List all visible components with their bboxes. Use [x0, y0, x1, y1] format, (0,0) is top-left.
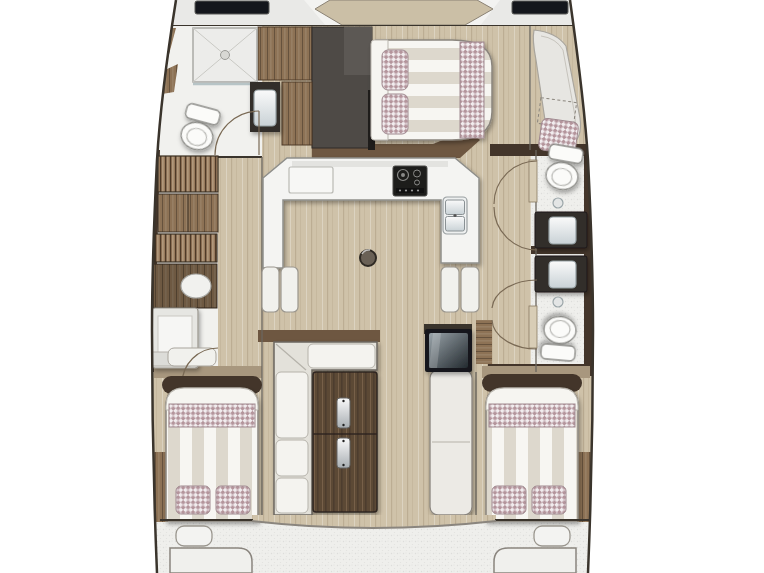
- sofa-cushion-left-3: [276, 478, 308, 513]
- sink-faucet: [453, 214, 456, 217]
- dinette-table: [313, 372, 377, 512]
- port-hull-wardrobes: [152, 156, 218, 384]
- shower-drain-icon: [553, 198, 563, 208]
- aft-port-cabin: [162, 376, 262, 521]
- aft-starboard-cabin: [482, 374, 582, 521]
- sink-basin-1: [446, 200, 465, 215]
- deck-hatch-port-icon: [195, 1, 269, 14]
- washbasin-icon: [254, 90, 276, 126]
- forward-berth-pillow-2: [382, 94, 408, 134]
- sofa-cushion-top: [308, 344, 375, 368]
- transom-locker-starboard: [494, 548, 576, 573]
- shower: [193, 28, 257, 84]
- catamaran-floor-plan: [0, 0, 764, 573]
- washbasin-icon: [549, 261, 576, 288]
- sofa-cushion-left-2: [276, 440, 308, 476]
- galley-stove-icon: [393, 166, 427, 196]
- forward-cabinet-wood: [258, 27, 312, 80]
- forward-head-vanity: [250, 82, 280, 132]
- cockpit-step-port: [176, 526, 212, 546]
- toilet-tank: [540, 343, 575, 361]
- door-leaf: [529, 306, 537, 348]
- forward-berth-pillow-1: [382, 50, 408, 90]
- sofa-back-wall: [258, 330, 380, 342]
- foredeck: [148, 0, 598, 26]
- floor-plan-page: [0, 0, 764, 573]
- forward-storage-dark-upper: [344, 27, 372, 75]
- galley-sink-icon: [443, 197, 467, 234]
- forward-cabinet-wood-2: [282, 82, 312, 145]
- hanging-locker-2: [155, 234, 217, 262]
- forward-berth-pillow-band: [460, 42, 484, 138]
- salon-bench: [430, 370, 472, 515]
- sofa-cushion-left-1: [276, 372, 308, 438]
- cutting-board: [289, 167, 333, 193]
- starboard-berth-pillow-2: [532, 486, 566, 514]
- floor-hatch-icon: [360, 250, 376, 266]
- hanging-locker-1: [158, 156, 218, 192]
- bow-seat-cushion: [315, 0, 493, 25]
- starboard-berth-pillow-1: [492, 486, 526, 514]
- deck-hatch-starboard-icon: [512, 1, 568, 14]
- step-tread: [461, 267, 479, 312]
- starboard-aft-locker: [577, 452, 591, 522]
- cool-box: [425, 329, 472, 372]
- vanity-starboard-aft: [535, 256, 587, 292]
- port-fold-seat: [181, 274, 211, 298]
- shower-drain-icon: [553, 297, 563, 307]
- washbasin-icon: [549, 217, 576, 244]
- salon-aft-shelf: [476, 320, 492, 364]
- starboard-berth-pillow-band: [489, 404, 575, 427]
- table-latch-1: [337, 398, 350, 428]
- cockpit-step-starboard: [534, 526, 570, 546]
- transom-locker-port: [170, 548, 252, 573]
- step-tread: [262, 267, 279, 312]
- sink-basin-2: [446, 217, 465, 232]
- step-tread: [441, 267, 459, 312]
- vanity-starboard-forward: [535, 212, 587, 248]
- step-tread: [281, 267, 298, 312]
- port-berth-pillow-2: [216, 486, 250, 514]
- forward-starboard-cabin: [371, 40, 492, 140]
- port-corridor-step: [168, 348, 216, 366]
- stove-burner-center: [401, 173, 405, 177]
- table-latch-2: [337, 438, 350, 468]
- port-berth-pillow-band: [169, 404, 255, 427]
- port-berth-pillow-1: [176, 486, 210, 514]
- shower-drain-icon: [221, 51, 230, 60]
- door-leaf: [529, 160, 537, 202]
